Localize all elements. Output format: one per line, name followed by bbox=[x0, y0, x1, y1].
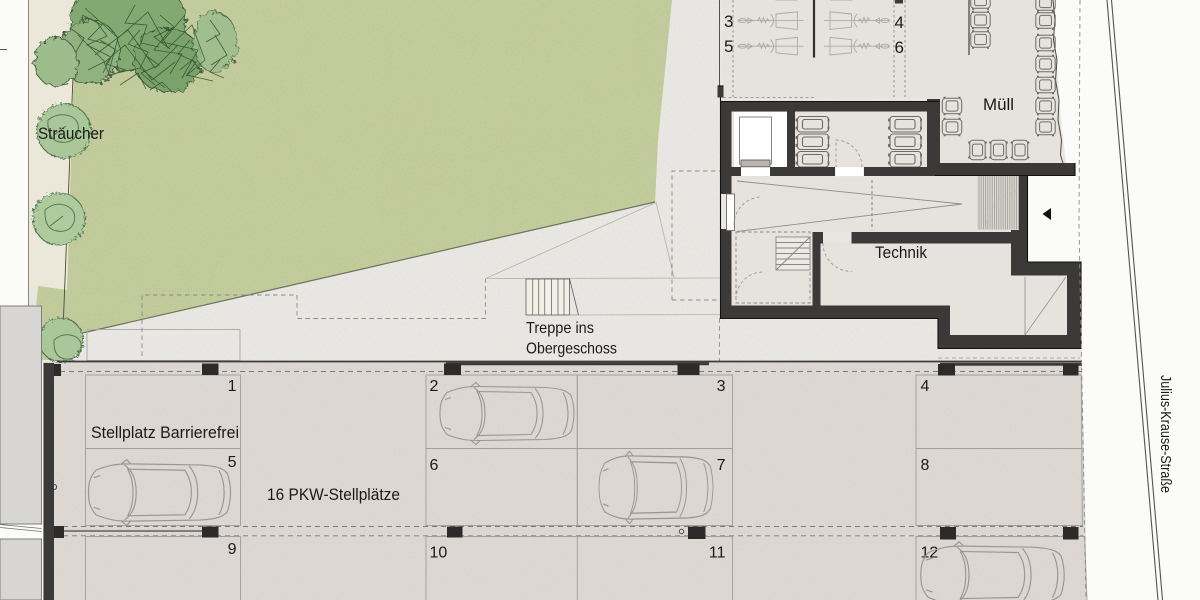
svg-text:3: 3 bbox=[724, 12, 733, 31]
svg-text:Müll: Müll bbox=[983, 95, 1014, 114]
svg-text:7: 7 bbox=[717, 457, 726, 474]
svg-text:6: 6 bbox=[430, 457, 439, 474]
svg-text:Technik: Technik bbox=[875, 243, 927, 262]
svg-text:5: 5 bbox=[228, 454, 237, 471]
svg-text:1: 1 bbox=[228, 378, 237, 395]
svg-text:2: 2 bbox=[430, 378, 439, 395]
svg-text:8: 8 bbox=[921, 457, 930, 474]
svg-text:11: 11 bbox=[709, 545, 726, 562]
svg-text:Treppe ins: Treppe ins bbox=[526, 320, 594, 337]
svg-text:4: 4 bbox=[895, 13, 904, 32]
svg-text:3: 3 bbox=[717, 378, 726, 395]
svg-text:Julius-Krause-Straße: Julius-Krause-Straße bbox=[1157, 375, 1174, 493]
svg-text:16 PKW-Stellplätze: 16 PKW-Stellplätze bbox=[267, 485, 400, 504]
svg-text:4: 4 bbox=[921, 378, 930, 395]
svg-text:Obergeschoss: Obergeschoss bbox=[526, 341, 617, 358]
svg-text:Sträucher: Sträucher bbox=[38, 124, 104, 143]
svg-text:6: 6 bbox=[895, 38, 904, 57]
svg-text:9: 9 bbox=[228, 541, 237, 558]
svg-text:5: 5 bbox=[724, 37, 733, 56]
svg-text:Stellplatz Barrierefrei: Stellplatz Barrierefrei bbox=[91, 423, 239, 442]
svg-text:10: 10 bbox=[430, 545, 448, 562]
